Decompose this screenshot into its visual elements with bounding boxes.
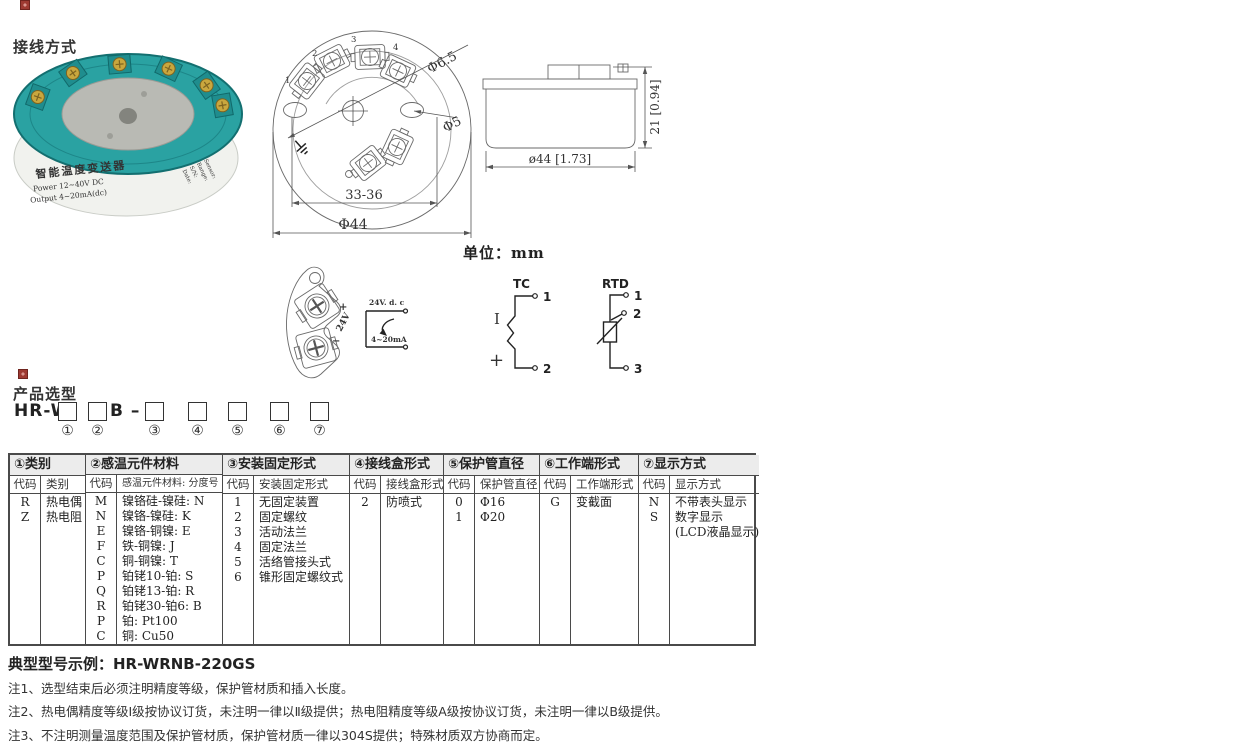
model-mid: B – <box>110 401 140 421</box>
column-title: ②感温元件材料 <box>86 455 222 475</box>
label-list: 不带表头显示数字显示(LCD液晶显示) <box>670 494 759 644</box>
row-code: G <box>540 495 570 510</box>
row-label: 铜-铜镍: T <box>122 554 204 569</box>
column-header-code: 代码 <box>223 476 254 493</box>
dim-height: 21 [0.94] <box>648 79 662 134</box>
row-code: S <box>639 510 669 525</box>
row-label: 铜: Cu50 <box>122 629 204 644</box>
side-view-drawing: 21 [0.94] ø44 [1.73] <box>478 55 668 180</box>
rtd-title: RTD <box>602 277 629 291</box>
row-label: 热电偶 <box>46 495 82 510</box>
column-subheader: 代码工作端形式 <box>540 476 638 494</box>
column-title: ④接线盒形式 <box>350 455 443 476</box>
row-label: 无固定装置 <box>259 495 343 510</box>
row-code: P <box>86 569 116 584</box>
row-label: 活动法兰 <box>259 525 343 540</box>
column-title: ⑥工作端形式 <box>540 455 638 476</box>
loop-current-label: 4~20mA <box>371 335 407 344</box>
row-label: 铂铑13-铂: R <box>122 584 204 599</box>
top-view-drawing: 1 2 3 4 Φ6.5 Φ5 33-36 Φ44 <box>262 20 480 245</box>
column-body: G变截面 <box>540 494 638 644</box>
column-subheader: 代码感温元件材料: 分度号 <box>86 475 222 493</box>
label-list: 防喷式 <box>381 494 422 644</box>
lug-minus-label: − <box>332 336 340 347</box>
loop-supply-label: 24V. d. c <box>369 298 405 307</box>
row-label: 热电阻 <box>46 510 82 525</box>
row-code: 2 <box>350 495 380 510</box>
column-title: ⑦显示方式 <box>639 455 759 476</box>
table-column: ④接线盒形式代码接线盒形式2防喷式 <box>350 455 444 644</box>
row-code <box>639 525 669 540</box>
row-label: Φ20 <box>480 510 505 525</box>
column-header-label: 感温元件材料: 分度号 <box>117 475 219 492</box>
position-number-1: ① <box>58 423 77 439</box>
table-column: ③安装固定形式代码安装固定形式123456无固定装置固定螺纹活动法兰固定法兰活络… <box>223 455 350 644</box>
model-box-7 <box>310 402 329 421</box>
column-subheader: 代码保护管直径 <box>444 476 539 494</box>
column-title: ①类别 <box>10 455 85 476</box>
mounting-lug-drawing: + 24V − <box>283 264 365 382</box>
position-number-4: ④ <box>188 423 207 439</box>
table-column: ②感温元件材料代码感温元件材料: 分度号MNEFCPQRPC镍铬硅-镍硅: N镍… <box>86 455 223 644</box>
row-code: Q <box>86 584 116 599</box>
table-column: ⑦显示方式代码显示方式NS 不带表头显示数字显示(LCD液晶显示) <box>639 455 759 644</box>
column-header-code: 代码 <box>444 476 475 493</box>
model-box-4 <box>188 402 207 421</box>
code-list: RZ <box>10 494 41 644</box>
label-list: 变截面 <box>571 494 612 644</box>
column-header-code: 代码 <box>86 475 117 492</box>
note-2: 注2、热电偶精度等级I级按协议订货，未注明一律以Ⅱ级提供；热电阻精度等级A级按协… <box>8 701 668 720</box>
column-header-code: 代码 <box>540 476 571 493</box>
code-list: G <box>540 494 571 644</box>
row-code: R <box>86 599 116 614</box>
row-label: 固定法兰 <box>259 540 343 555</box>
row-label: 镍铬-铜镍: E <box>122 524 204 539</box>
terminal-number-3: 3 <box>351 35 356 45</box>
column-header-code: 代码 <box>350 476 381 493</box>
model-box-1 <box>58 402 77 421</box>
position-number-2: ② <box>88 423 107 439</box>
label-list: 无固定装置固定螺纹活动法兰固定法兰活络管接头式锥形固定螺纹式 <box>254 494 343 644</box>
model-box-5 <box>228 402 247 421</box>
section-marker-icon <box>20 0 30 10</box>
dim-hole-small: Φ5 <box>440 114 464 136</box>
tc-wiring-diagram: TC 1 2 I + <box>486 272 560 384</box>
terminal-number-1: 1 <box>285 76 290 86</box>
rtd-pin-2: 2 <box>633 307 641 321</box>
model-box-2 <box>88 402 107 421</box>
dim-outer-diameter: Φ44 <box>338 217 367 233</box>
note-1: 注1、选型结束后必须注明精度等级，保护管材质和插入长度。 <box>8 678 353 697</box>
code-list: MNEFCPQRPC <box>86 493 117 644</box>
product-photo: 智能温度变送器 Power 12~40V DC Output 4~20mA(dc… <box>6 48 246 220</box>
label-list: Φ16Φ20 <box>475 494 505 644</box>
rtd-wiring-diagram: RTD 1 2 3 <box>588 272 656 384</box>
row-code: Z <box>10 510 40 525</box>
row-label: 锥形固定螺纹式 <box>259 570 343 585</box>
column-body: 123456无固定装置固定螺纹活动法兰固定法兰活络管接头式锥形固定螺纹式 <box>223 494 349 644</box>
column-body: 2防喷式 <box>350 494 443 644</box>
row-label: 铁-铜镍: J <box>122 539 204 554</box>
row-label: 镍铬硅-镍硅: N <box>122 494 204 509</box>
row-code: 0 <box>444 495 474 510</box>
dim-width: ø44 [1.73] <box>529 152 591 166</box>
selection-table: ①类别代码类别RZ热电偶热电阻②感温元件材料代码感温元件材料: 分度号MNEFC… <box>8 453 756 646</box>
column-subheader: 代码类别 <box>10 476 85 494</box>
current-loop-diagram: 24V. d. c 4~20mA <box>358 292 416 356</box>
column-subheader: 代码安装固定形式 <box>223 476 349 494</box>
label-list: 镍铬硅-镍硅: N镍铬-镍硅: K镍铬-铜镍: E铁-铜镍: J铜-铜镍: T铂… <box>117 493 204 644</box>
column-subheader: 代码显示方式 <box>639 476 759 494</box>
row-label: (LCD液晶显示) <box>675 525 759 540</box>
column-body: RZ热电偶热电阻 <box>10 494 85 644</box>
column-header-label: 类别 <box>41 476 69 493</box>
tc-negative-label: I <box>494 310 500 328</box>
row-code: 1 <box>223 495 253 510</box>
row-code: 3 <box>223 525 253 540</box>
tc-pin-1: 1 <box>543 290 551 304</box>
column-header-label: 工作端形式 <box>571 476 634 493</box>
model-box-3 <box>145 402 164 421</box>
label-list: 热电偶热电阻 <box>41 494 82 644</box>
table-column: ⑤保护管直径代码保护管直径01Φ16Φ20 <box>444 455 540 644</box>
row-code: R <box>10 495 40 510</box>
row-label: 数字显示 <box>675 510 759 525</box>
column-header-code: 代码 <box>639 476 670 493</box>
example-model-line: 典型型号示例：HR-WRNB-220GS <box>8 653 255 674</box>
row-code: 2 <box>223 510 253 525</box>
code-list: NS <box>639 494 670 644</box>
position-number-6: ⑥ <box>270 423 289 439</box>
position-number-7: ⑦ <box>310 423 329 439</box>
table-column: ①类别代码类别RZ热电偶热电阻 <box>10 455 86 644</box>
note-3: 注3、不注明测量温度范围及保护管材质，保护管材质一律以304S提供；特殊材质双方… <box>8 725 548 743</box>
column-body: 01Φ16Φ20 <box>444 494 539 644</box>
row-label: Φ16 <box>480 495 505 510</box>
column-header-code: 代码 <box>10 476 41 493</box>
dim-hole-large: Φ6.5 <box>425 49 460 77</box>
row-label: 镍铬-镍硅: K <box>122 509 204 524</box>
row-label: 铂铑10-铂: S <box>122 569 204 584</box>
row-code: 1 <box>444 510 474 525</box>
tc-pin-2: 2 <box>543 362 551 376</box>
code-list: 123456 <box>223 494 254 644</box>
column-header-label: 安装固定形式 <box>254 476 328 493</box>
row-label: 活络管接头式 <box>259 555 343 570</box>
column-header-label: 显示方式 <box>670 476 721 493</box>
row-code: E <box>86 524 116 539</box>
row-code: N <box>639 495 669 510</box>
column-body: MNEFCPQRPC镍铬硅-镍硅: N镍铬-镍硅: K镍铬-铜镍: E铁-铜镍:… <box>86 493 222 644</box>
row-code: 5 <box>223 555 253 570</box>
row-label: 固定螺纹 <box>259 510 343 525</box>
column-title: ⑤保护管直径 <box>444 455 539 476</box>
position-number-3: ③ <box>145 423 164 439</box>
terminal-number-4: 4 <box>393 43 398 53</box>
tc-positive-label: + <box>489 350 504 371</box>
row-code: 4 <box>223 540 253 555</box>
unit-label: 单位：mm <box>463 242 545 263</box>
dim-span: 33-36 <box>345 188 382 203</box>
code-list: 01 <box>444 494 475 644</box>
column-header-label: 接线盒形式 <box>381 476 443 493</box>
row-code: C <box>86 629 116 644</box>
section-marker-icon <box>18 369 28 379</box>
row-label: 不带表头显示 <box>675 495 759 510</box>
terminal-number-2: 2 <box>312 49 317 59</box>
row-label: 铂铑30-铂6: B <box>122 599 204 614</box>
code-list: 2 <box>350 494 381 644</box>
model-box-6 <box>270 402 289 421</box>
row-code: N <box>86 509 116 524</box>
tc-title: TC <box>513 277 530 291</box>
row-code: M <box>86 494 116 509</box>
row-code: 6 <box>223 570 253 585</box>
column-body: NS 不带表头显示数字显示(LCD液晶显示) <box>639 494 759 644</box>
column-header-label: 保护管直径 <box>475 476 538 493</box>
column-title: ③安装固定形式 <box>223 455 349 476</box>
datasheet-page: 接线方式 智能温度变送器 Power 12~40V DC Output 4~20… <box>0 0 1251 743</box>
row-code: P <box>86 614 116 629</box>
rtd-pin-3: 3 <box>634 362 642 376</box>
row-code: F <box>86 539 116 554</box>
row-code: C <box>86 554 116 569</box>
table-column: ⑥工作端形式代码工作端形式G变截面 <box>540 455 639 644</box>
position-number-5: ⑤ <box>228 423 247 439</box>
column-subheader: 代码接线盒形式 <box>350 476 443 494</box>
row-label: 铂: Pt100 <box>122 614 204 629</box>
row-label: 变截面 <box>576 495 612 510</box>
row-label: 防喷式 <box>386 495 422 510</box>
lug-supply-label: 24V <box>335 311 353 334</box>
rtd-pin-1: 1 <box>634 289 642 303</box>
